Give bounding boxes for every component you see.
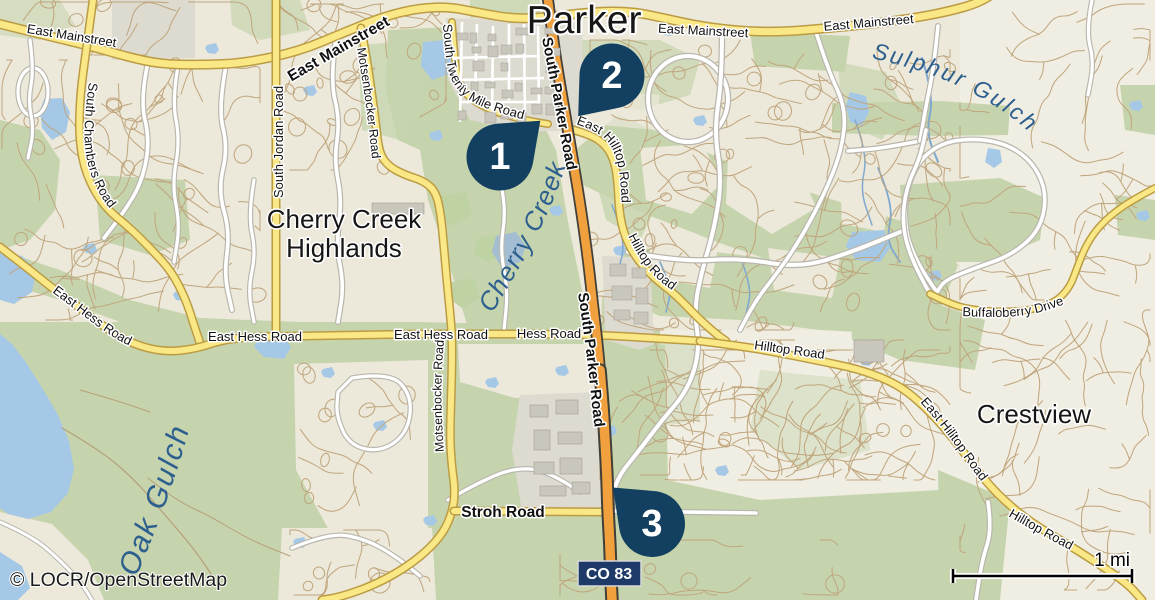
svg-text:1: 1 — [489, 136, 510, 178]
svg-text:3: 3 — [641, 503, 662, 545]
svg-text:© LOCR/OpenStreetMap: © LOCR/OpenStreetMap — [10, 569, 227, 591]
svg-text:CO 83: CO 83 — [586, 566, 632, 583]
svg-text:2: 2 — [601, 55, 622, 97]
svg-text:Crestview: Crestview — [977, 399, 1091, 429]
svg-text:East Hess Road: East Hess Road — [208, 329, 302, 344]
svg-text:1 mi: 1 mi — [1094, 550, 1130, 571]
svg-text:South Jordan Road: South Jordan Road — [271, 86, 286, 198]
svg-text:Highlands: Highlands — [286, 233, 402, 263]
svg-text:Cherry Creek: Cherry Creek — [267, 204, 423, 234]
svg-text:Parker: Parker — [527, 0, 642, 42]
svg-text:East Hess Road: East Hess Road — [394, 327, 488, 342]
svg-text:Stroh Road: Stroh Road — [461, 504, 545, 521]
svg-text:Hess Road: Hess Road — [517, 326, 581, 341]
